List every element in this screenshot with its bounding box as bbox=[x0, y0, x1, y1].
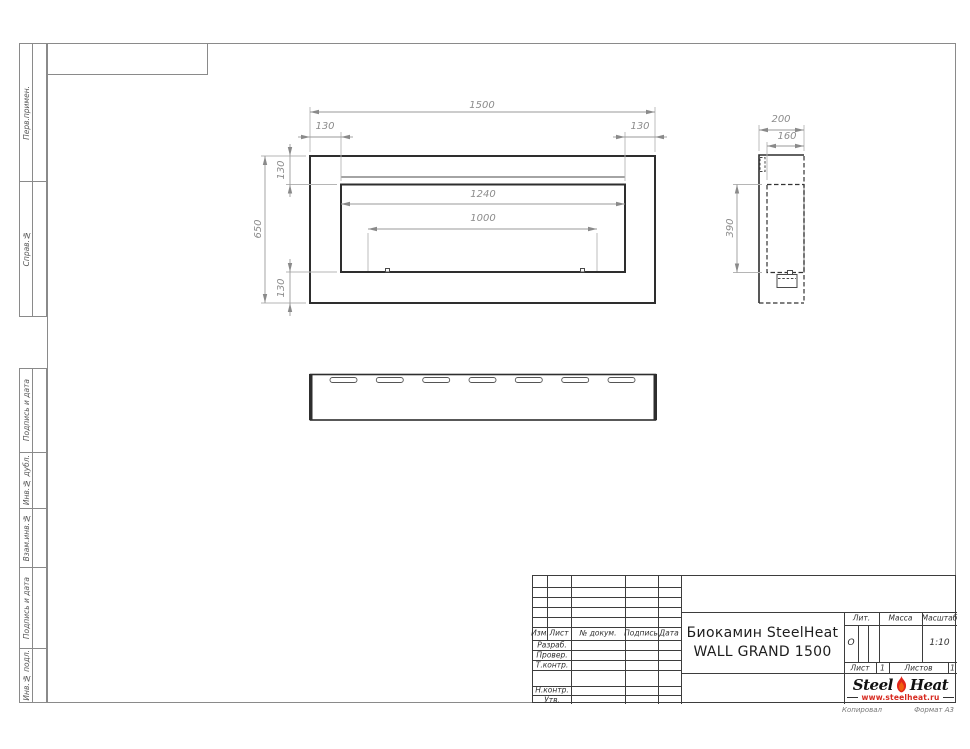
steelheat-logo: Steel Heat www.steelheat.ru bbox=[844, 673, 957, 704]
vent-slot bbox=[376, 378, 403, 383]
logo-steel: Steel bbox=[853, 676, 893, 694]
dim-top-margin: 130 bbox=[276, 160, 287, 179]
vent-slot bbox=[469, 378, 496, 383]
url-rule-right bbox=[943, 697, 954, 698]
side-view-dimensions: 200 160 390 bbox=[725, 114, 804, 273]
dim-right-margin: 130 bbox=[630, 121, 649, 132]
title-line-1: Биокамин SteelHeat bbox=[687, 625, 839, 641]
bottom-view bbox=[309, 374, 657, 420]
lit-label: Лит. bbox=[853, 614, 870, 623]
col-izm: Изм. bbox=[531, 629, 549, 638]
col-list: Лист bbox=[549, 629, 568, 638]
format-label: Формат А3 bbox=[914, 706, 954, 714]
mass-label: Масса bbox=[889, 614, 913, 623]
document-title: Биокамин SteelHeat WALL GRAND 1500 bbox=[681, 612, 844, 673]
row-tkontr: Т.контр. bbox=[536, 661, 569, 670]
burner-tab-left bbox=[386, 269, 390, 273]
url-rule-left bbox=[847, 697, 858, 698]
dim-burner-width: 1000 bbox=[470, 213, 495, 224]
scale-label: Масштаб bbox=[922, 614, 958, 623]
title-line-2: WALL GRAND 1500 bbox=[693, 644, 831, 660]
row-razrab: Разраб. bbox=[537, 641, 566, 650]
scale-value: 1:10 bbox=[929, 638, 949, 648]
sheets-label: Листов bbox=[904, 663, 932, 672]
dim-opening-height: 390 bbox=[725, 218, 736, 237]
drawing-sheet: Перв.примен. Справ.№ Подпись и дата Инв.… bbox=[0, 0, 970, 749]
col-sign: Подпись bbox=[624, 629, 658, 638]
wall-bracket-detail bbox=[760, 158, 765, 172]
col-date: Дата bbox=[659, 629, 678, 638]
sheet-number: 1 bbox=[880, 663, 885, 672]
burner-side-detail bbox=[777, 275, 797, 288]
dim-inner-depth: 160 bbox=[777, 131, 796, 142]
row-utv: Утв. bbox=[544, 695, 560, 704]
row-prover: Провер. bbox=[536, 651, 567, 660]
logo-heat: Heat bbox=[910, 676, 948, 694]
copied-label: Копировал bbox=[842, 706, 882, 714]
col-doc: № докум. bbox=[580, 629, 617, 638]
row-nkontr: Н.контр. bbox=[535, 686, 569, 695]
dim-overall-width: 1500 bbox=[469, 100, 494, 111]
logo-website: www.steelheat.ru bbox=[861, 693, 939, 702]
dim-depth: 200 bbox=[771, 114, 790, 125]
title-block: Изм. Лист № докум. Подпись Дата Разраб. … bbox=[532, 575, 956, 703]
flame-icon bbox=[894, 676, 909, 693]
front-view bbox=[310, 156, 655, 303]
vent-slot bbox=[515, 378, 542, 383]
sheet-label: Лист bbox=[850, 663, 869, 672]
vent-slot bbox=[423, 378, 450, 383]
vent-slot bbox=[608, 378, 635, 383]
side-view bbox=[759, 155, 804, 303]
sheets-total: 1 bbox=[950, 663, 955, 672]
dim-opening-width: 1240 bbox=[470, 189, 495, 200]
burner-tab-right bbox=[581, 269, 585, 273]
vent-slot bbox=[562, 378, 589, 383]
dim-left-margin: 130 bbox=[315, 121, 334, 132]
lit-value: О bbox=[847, 638, 854, 648]
dim-overall-height: 650 bbox=[253, 219, 264, 238]
vent-slot bbox=[330, 378, 357, 383]
dim-bottom-margin: 130 bbox=[276, 278, 287, 297]
